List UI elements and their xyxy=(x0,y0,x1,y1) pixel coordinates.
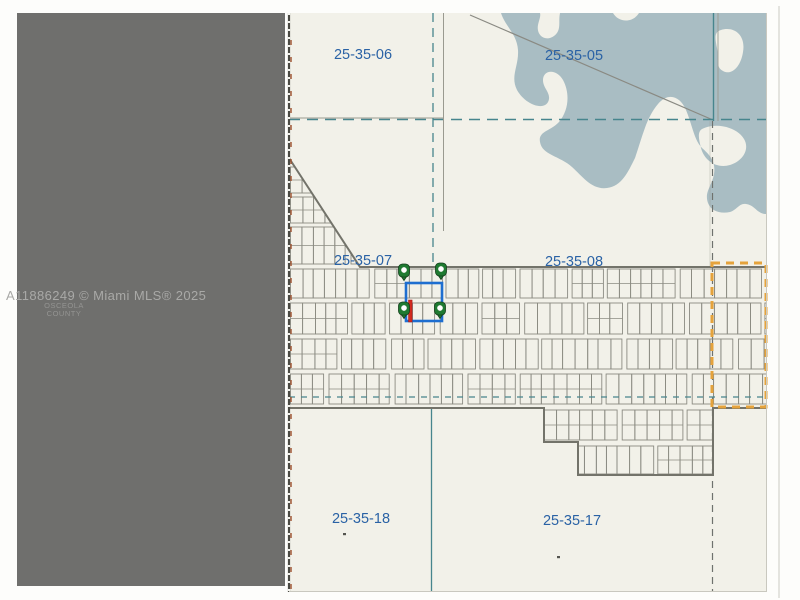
section-label-25-35-07: 25-35-07 xyxy=(334,253,392,269)
map-dot xyxy=(557,556,560,558)
section-label-25-35-06: 25-35-06 xyxy=(334,47,392,63)
map-dot xyxy=(343,533,346,535)
section-label-25-35-17: 25-35-17 xyxy=(543,513,601,529)
section-label-25-35-18: 25-35-18 xyxy=(332,511,390,527)
mls-watermark: A11886249 © Miami MLS® 2025 xyxy=(6,288,206,303)
section-label-25-35-05: 25-35-05 xyxy=(545,48,603,64)
section-label-25-35-08: 25-35-08 xyxy=(545,254,603,270)
county-watermark-line2: COUNTY xyxy=(28,310,100,318)
county-watermark: OSCEOLA COUNTY xyxy=(28,302,100,318)
scanned-plat-page: 25-35-0625-35-0525-35-0725-35-0825-35-18… xyxy=(0,0,800,600)
